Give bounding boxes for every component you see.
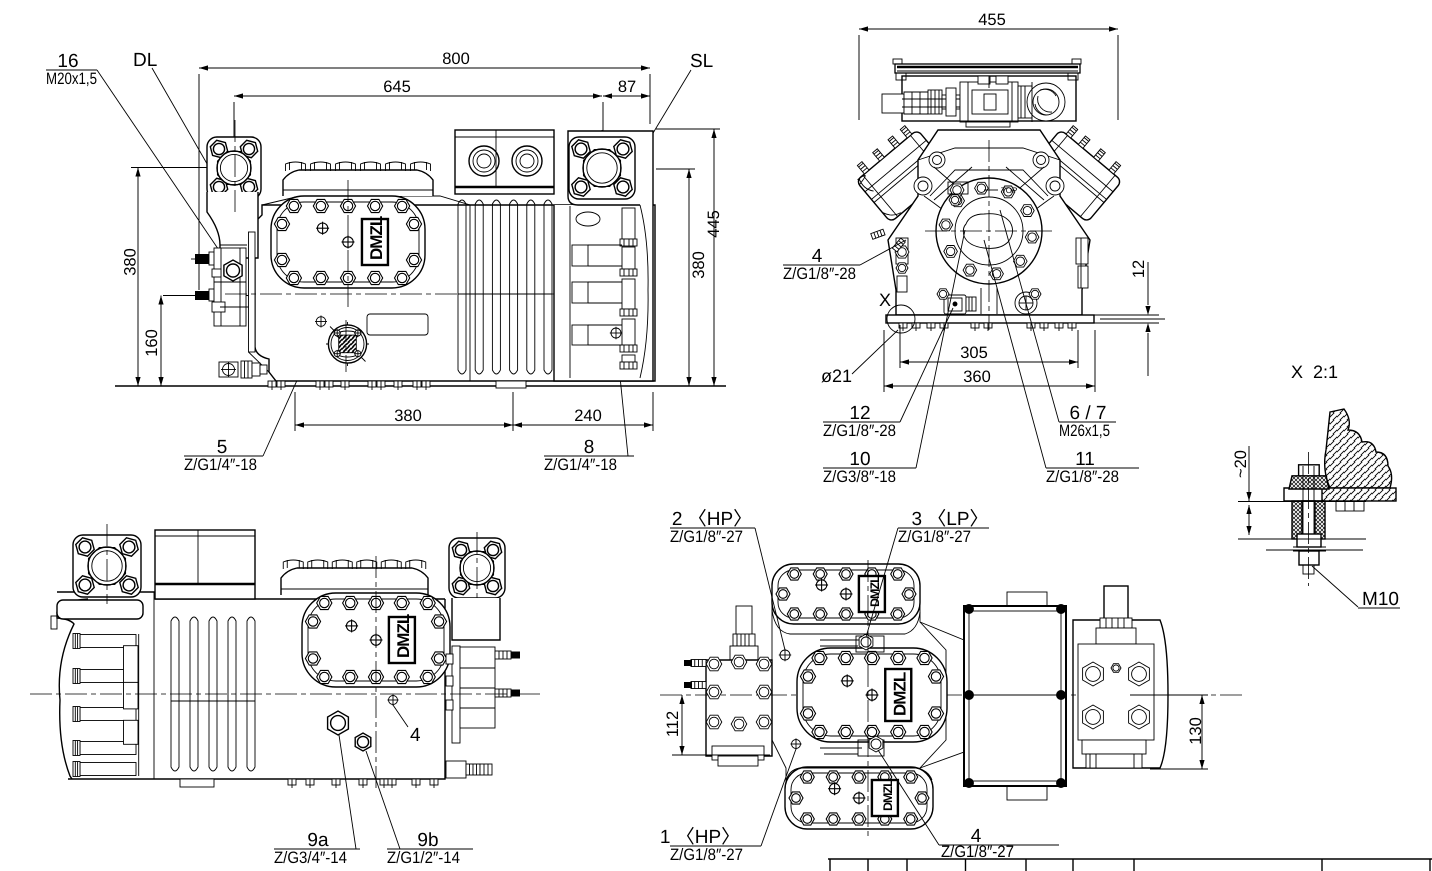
svg-text:Z/G1/8″-27: Z/G1/8″-27 bbox=[670, 528, 743, 546]
svg-text:800: 800 bbox=[442, 50, 470, 68]
svg-text:Z/G3/8″-18: Z/G3/8″-18 bbox=[823, 468, 896, 486]
svg-text:305: 305 bbox=[960, 344, 988, 362]
svg-text:Z/G1/8″-28: Z/G1/8″-28 bbox=[1046, 468, 1119, 486]
svg-text:Z/G3/4″-14: Z/G3/4″-14 bbox=[274, 849, 347, 867]
svg-text:M20x1,5: M20x1,5 bbox=[46, 70, 97, 88]
svg-text:X 2:1: X 2:1 bbox=[1291, 362, 1338, 382]
svg-text:380: 380 bbox=[122, 248, 140, 276]
svg-text:Z/G1/8″-27: Z/G1/8″-27 bbox=[898, 528, 971, 546]
svg-text:~20: ~20 bbox=[1232, 450, 1250, 478]
svg-text:ø21: ø21 bbox=[821, 366, 852, 386]
svg-text:12: 12 bbox=[1130, 260, 1148, 278]
svg-text:TOP: TOP bbox=[1001, 186, 1017, 195]
svg-text:Z/G1/8″-27: Z/G1/8″-27 bbox=[670, 846, 743, 864]
svg-text:X: X bbox=[879, 290, 891, 310]
svg-text:DMZL: DMZL bbox=[394, 614, 413, 658]
svg-text:DMZL: DMZL bbox=[890, 672, 909, 716]
svg-text:16: 16 bbox=[57, 51, 78, 72]
svg-text:1 〈HP〉: 1 〈HP〉 bbox=[660, 826, 740, 848]
svg-text:DL: DL bbox=[133, 50, 157, 71]
svg-text:Z/G1/8″-28: Z/G1/8″-28 bbox=[823, 422, 896, 440]
svg-text:DMZL: DMZL bbox=[881, 779, 895, 811]
svg-text:DMZL: DMZL bbox=[367, 216, 386, 260]
svg-text:4: 4 bbox=[410, 725, 421, 746]
svg-text:455: 455 bbox=[978, 11, 1006, 29]
svg-text:4: 4 bbox=[812, 246, 823, 267]
svg-text:Z/G1/8″-28: Z/G1/8″-28 bbox=[783, 265, 856, 283]
svg-text:445: 445 bbox=[705, 210, 723, 238]
svg-text:6 / 7: 6 / 7 bbox=[1070, 403, 1107, 424]
svg-text:2 〈HP〉: 2 〈HP〉 bbox=[672, 508, 752, 530]
svg-text:M26x1,5: M26x1,5 bbox=[1059, 422, 1110, 440]
svg-text:9b: 9b bbox=[417, 830, 438, 851]
svg-text:Z/G1/4″-18: Z/G1/4″-18 bbox=[544, 456, 617, 474]
svg-text:10: 10 bbox=[849, 449, 870, 470]
svg-text:87: 87 bbox=[618, 78, 636, 96]
svg-text:645: 645 bbox=[383, 78, 411, 96]
svg-text:240: 240 bbox=[574, 407, 602, 425]
svg-text:Z/G1/4″-18: Z/G1/4″-18 bbox=[184, 456, 257, 474]
svg-text:130: 130 bbox=[1187, 717, 1205, 745]
svg-text:160: 160 bbox=[143, 329, 161, 357]
svg-text:SL: SL bbox=[690, 51, 713, 72]
svg-text:12: 12 bbox=[849, 403, 870, 424]
svg-text:3 〈LP〉: 3 〈LP〉 bbox=[911, 508, 988, 530]
svg-text:Z/G1/2″-14: Z/G1/2″-14 bbox=[387, 849, 460, 867]
svg-text:11: 11 bbox=[1075, 449, 1095, 470]
svg-text:112: 112 bbox=[664, 711, 682, 737]
svg-text:8: 8 bbox=[584, 437, 595, 458]
svg-text:M10: M10 bbox=[1362, 589, 1399, 610]
svg-text:360: 360 bbox=[963, 368, 991, 386]
svg-text:380: 380 bbox=[690, 251, 708, 279]
svg-text:5: 5 bbox=[217, 437, 228, 458]
svg-text:380: 380 bbox=[394, 407, 422, 425]
svg-text:9a: 9a bbox=[307, 830, 329, 851]
